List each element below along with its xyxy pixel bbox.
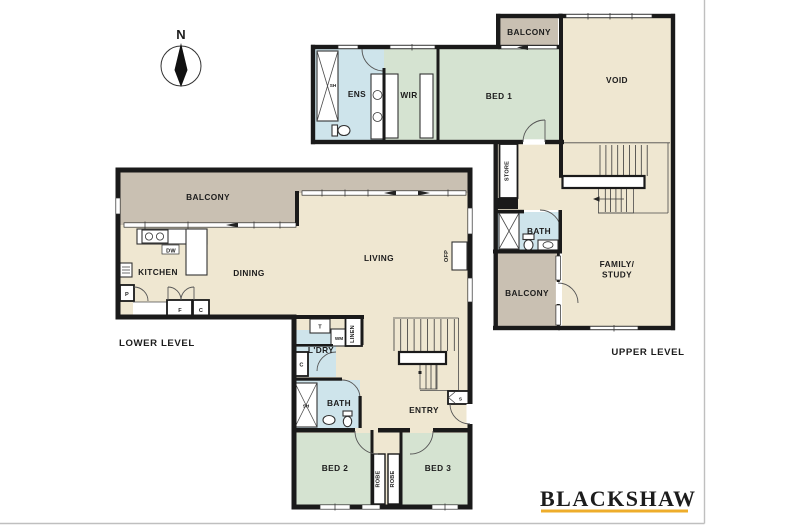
upper-stair-landing — [563, 176, 645, 188]
room-label-void: VOID — [606, 75, 628, 85]
lower-toilet-tank — [343, 411, 352, 416]
kitchen-bench — [186, 229, 207, 275]
room-label-ens: ENS — [348, 89, 366, 99]
ens-vanity — [371, 74, 384, 139]
fixture-label-shower-ens: SH — [330, 83, 337, 88]
compass-north-label: N — [176, 27, 185, 42]
fixture-label-robe2: ROBE — [390, 470, 396, 487]
stair-direction-dot — [419, 371, 422, 374]
fireplace-box — [452, 242, 467, 270]
room-label-entry: ENTRY — [409, 405, 439, 415]
ens-toilet-tank — [332, 125, 338, 136]
fixture-label-robe1: ROBE — [376, 470, 382, 487]
compass: N — [161, 27, 201, 87]
kitchen-sink — [142, 230, 168, 243]
room-label-family-line2: STUDY — [602, 270, 632, 280]
room-label-upper-balcony-mid: BALCONY — [505, 288, 549, 298]
room-label-upper-balcony-top: BALCONY — [507, 27, 551, 37]
ens-basin-icon — [373, 113, 382, 122]
room-label-bed1: BED 1 — [486, 91, 512, 101]
ens-basin-icon — [373, 91, 382, 100]
room-label-bed2: BED 2 — [322, 463, 348, 473]
wir-robe-box — [420, 74, 433, 138]
lower-balcony-strip-floor — [298, 171, 468, 193]
room-label-lower-balcony: BALCONY — [186, 192, 230, 202]
room-label-laundry: L'DRY — [308, 345, 334, 355]
fixture-label-cupboard-laundry: C — [299, 363, 303, 369]
fixture-label-trough: T — [318, 325, 322, 331]
room-label-dining: DINING — [233, 268, 264, 278]
room-label-lower-bath: BATH — [327, 398, 351, 408]
fixture-label-cupboard-kitchen: C — [199, 308, 203, 314]
blackshaw-logo-text: BLACKSHAW — [540, 486, 697, 511]
blackshaw-logo-underline — [541, 510, 688, 513]
fixture-label-fireplace: OFP — [444, 250, 450, 262]
lower-level-caption: LOWER LEVEL — [119, 338, 195, 349]
lower-toilet-icon — [343, 416, 351, 426]
lower-basin-icon — [323, 416, 335, 425]
blackshaw-logo: BLACKSHAW — [540, 486, 697, 513]
floorplan-page: N — [0, 0, 790, 527]
fixture-label-wm: WM — [335, 336, 343, 341]
wir-robe-box — [385, 74, 398, 138]
ens-toilet-icon — [338, 126, 350, 136]
floorplan-canvas: N — [0, 0, 790, 527]
upper-toilet-icon — [524, 240, 533, 250]
stair-landing — [399, 352, 446, 364]
fixture-label-dishwasher: DW — [166, 249, 176, 255]
void-family-floor — [562, 18, 671, 326]
fixture-label-fridge: F — [178, 308, 182, 314]
room-label-family-line1: FAMILY/ — [600, 259, 635, 269]
upper-level-caption: UPPER LEVEL — [611, 347, 684, 358]
room-label-store: STORE — [505, 161, 511, 181]
room-label-kitchen: KITCHEN — [138, 267, 178, 277]
room-label-upper-bath: BATH — [527, 226, 551, 236]
fixture-label-linen: LINEN — [350, 325, 356, 343]
room-label-living: LIVING — [364, 253, 394, 263]
room-label-bed3: BED 3 — [425, 463, 451, 473]
room-label-wir: WIR — [400, 90, 417, 100]
fixture-label-pantry: P — [125, 292, 129, 298]
lower-level-plan: BALCONY KITCHEN DINING LIVING L'DRY BATH… — [116, 170, 474, 511]
fixture-label-shower-lower: SH — [303, 404, 310, 409]
fixture-label-entry-store: S — [459, 397, 462, 402]
compass-needle-icon — [175, 43, 188, 87]
